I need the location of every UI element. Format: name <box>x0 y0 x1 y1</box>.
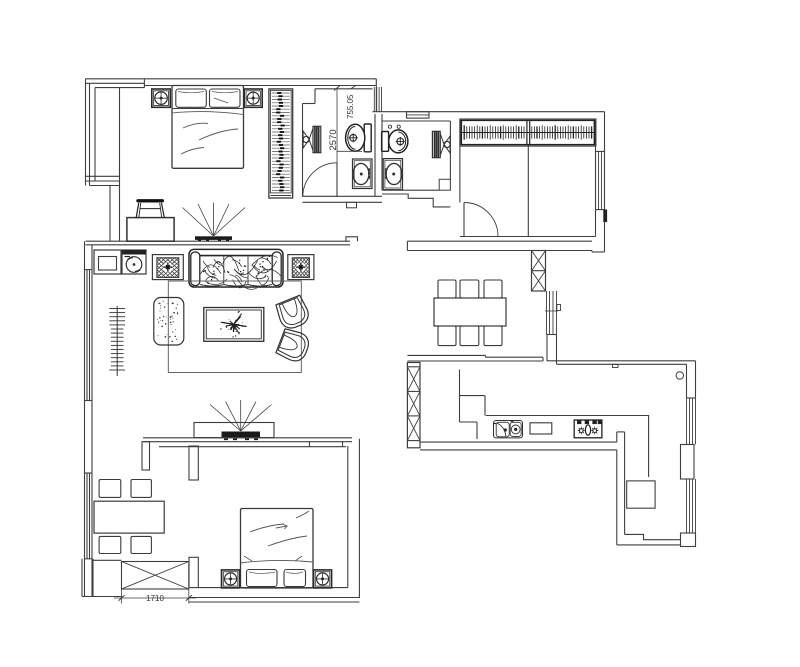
svg-text:1710: 1710 <box>146 594 164 603</box>
svg-text:2570: 2570 <box>328 129 339 150</box>
svg-text:755.05: 755.05 <box>346 94 355 119</box>
